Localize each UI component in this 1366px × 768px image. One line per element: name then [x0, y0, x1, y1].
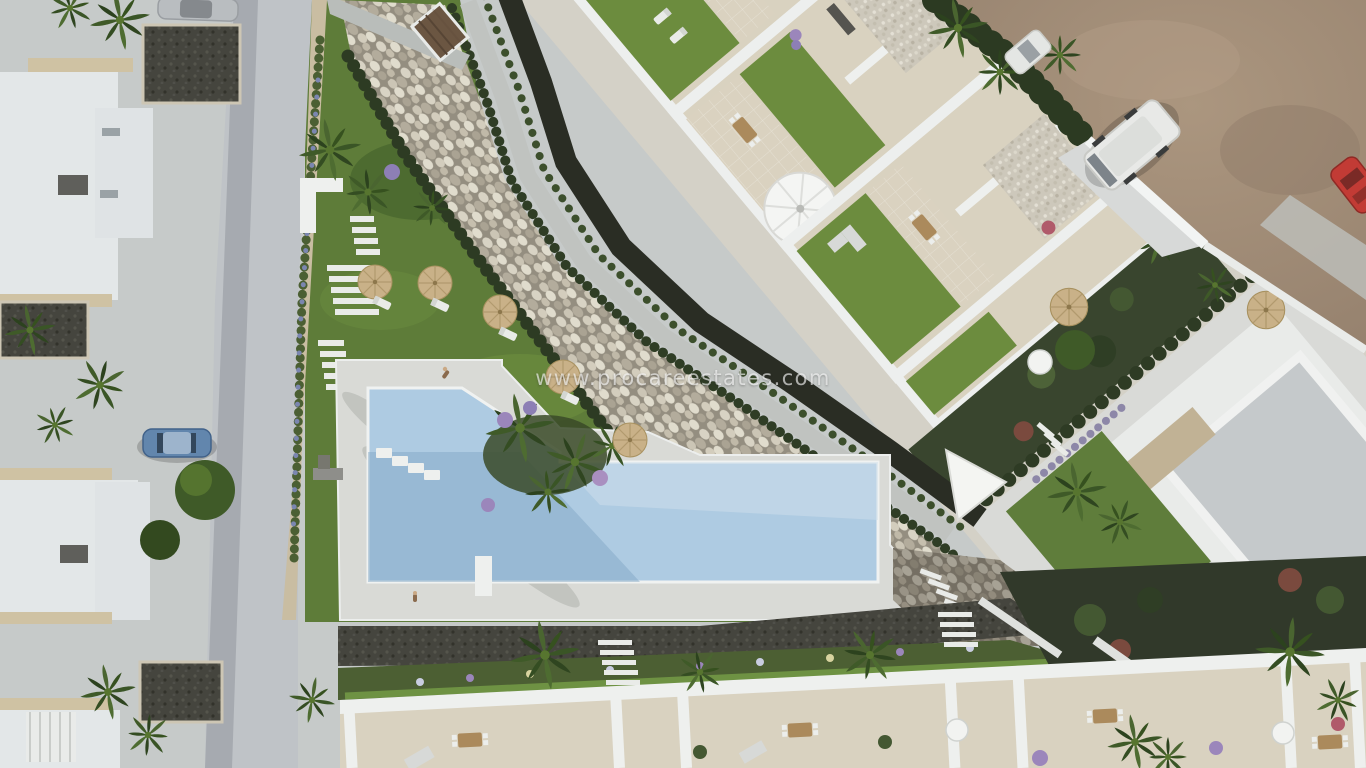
- potted-plant: [878, 735, 892, 749]
- white-sphere-lamp: [1028, 350, 1052, 374]
- white-sphere-lamp: [946, 719, 968, 741]
- silver-car: [158, 0, 239, 21]
- straw-parasol: [483, 295, 517, 329]
- bush: [1074, 604, 1106, 636]
- roof-window: [100, 190, 118, 198]
- roof-chimney: [60, 545, 88, 563]
- pool-platform: [475, 556, 492, 596]
- tree-highlight: [180, 464, 212, 496]
- villa-wing: [95, 108, 153, 238]
- straw-parasol: [613, 423, 647, 457]
- gravel-bed: [140, 662, 222, 722]
- gravel-bed: [0, 302, 88, 358]
- potted-plant: [693, 745, 707, 759]
- pergola-white: [26, 712, 76, 762]
- beige-parapet: [0, 612, 112, 624]
- bush: [1316, 586, 1344, 614]
- beige-parapet: [0, 698, 110, 710]
- red-leaf-shrub: [1278, 568, 1302, 592]
- straw-parasol: [1050, 288, 1087, 325]
- bush: [1137, 587, 1163, 613]
- person: [413, 591, 417, 602]
- straw-parasol: [358, 265, 392, 299]
- roof-window: [102, 128, 120, 136]
- flower-pot: [1032, 750, 1048, 766]
- straw-parasol: [418, 266, 452, 300]
- render-canvas: [0, 0, 1366, 768]
- gravel-bed: [143, 25, 240, 103]
- dirt-patch: [1060, 20, 1240, 100]
- flower-bush: [523, 401, 537, 415]
- beige-parapet: [28, 58, 133, 72]
- tree: [140, 520, 180, 560]
- beige-parapet: [0, 468, 112, 480]
- flower-pot: [1209, 741, 1223, 755]
- blue-car: [137, 429, 217, 463]
- flower-pot: [1331, 717, 1345, 731]
- aerial-render-scene: www.procareestates.com: [0, 0, 1366, 768]
- flower-bush: [497, 412, 513, 428]
- villa-wing: [95, 482, 150, 620]
- roof-chimney: [58, 175, 88, 195]
- straw-parasol: [546, 360, 580, 394]
- white-sphere-lamp: [1272, 722, 1294, 744]
- tree: [1055, 330, 1095, 370]
- flower-bush: [592, 470, 608, 486]
- flower-bush: [481, 498, 495, 512]
- flower-bush: [384, 164, 400, 180]
